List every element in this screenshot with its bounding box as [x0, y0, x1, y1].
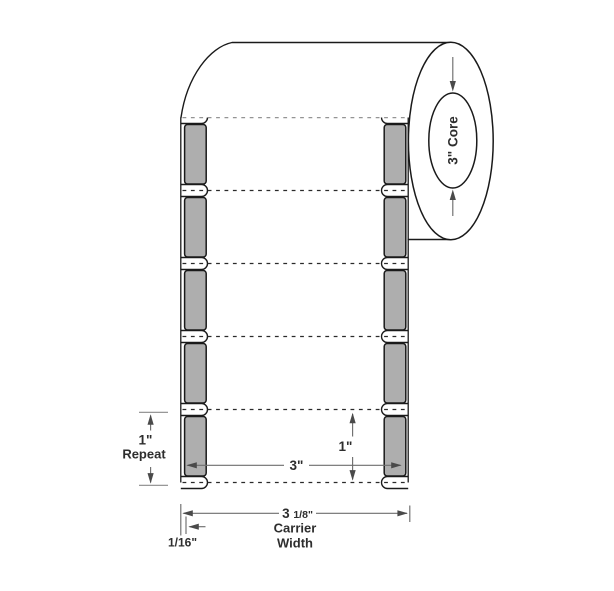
core-size-label: 3" Core: [446, 116, 461, 165]
arrow-right-icon: [397, 510, 408, 516]
arrow-down-icon: [350, 470, 356, 481]
edge-gap-dimension: 1/16": [168, 524, 206, 550]
arrow-left-icon: [188, 524, 199, 530]
label-height-dimension: 1": [339, 413, 356, 481]
arrow-up-icon: [148, 414, 154, 425]
carrier-width-dimension: 3 1/8" Carrier Width: [181, 504, 410, 551]
die-cut-notches: [181, 112, 408, 489]
carrier-width-value: 3 1/8": [282, 506, 313, 521]
carrier-width-whole: 3: [282, 506, 293, 521]
label-edge-bars: [185, 125, 406, 477]
repeat-caption-label: Repeat: [122, 447, 166, 462]
roll-body: 3" Core: [181, 42, 493, 240]
arrow-left-icon: [182, 510, 193, 516]
label-height-label: 1": [339, 439, 353, 454]
label-strip: [181, 112, 408, 489]
carrier-width-fraction: 1/8": [293, 509, 313, 521]
diagram-svg: 3" Core 1" Repeat 3" 1": [0, 0, 614, 591]
repeat-value-label: 1": [139, 433, 153, 448]
roll-silhouette: [181, 43, 450, 118]
label-roll-diagram: 3" Core 1" Repeat 3" 1": [0, 0, 614, 591]
perforation-dashed-lines: [183, 118, 407, 483]
arrow-down-icon: [148, 473, 154, 484]
label-width-dimension: 3": [186, 458, 401, 473]
repeat-dimension: 1" Repeat: [122, 412, 168, 485]
label-width-label: 3": [290, 458, 304, 473]
arrow-up-icon: [350, 413, 356, 424]
edge-gap-label: 1/16": [168, 536, 197, 550]
carrier-caption-line1: Carrier: [274, 521, 317, 536]
carrier-caption-line2: Width: [277, 536, 313, 551]
